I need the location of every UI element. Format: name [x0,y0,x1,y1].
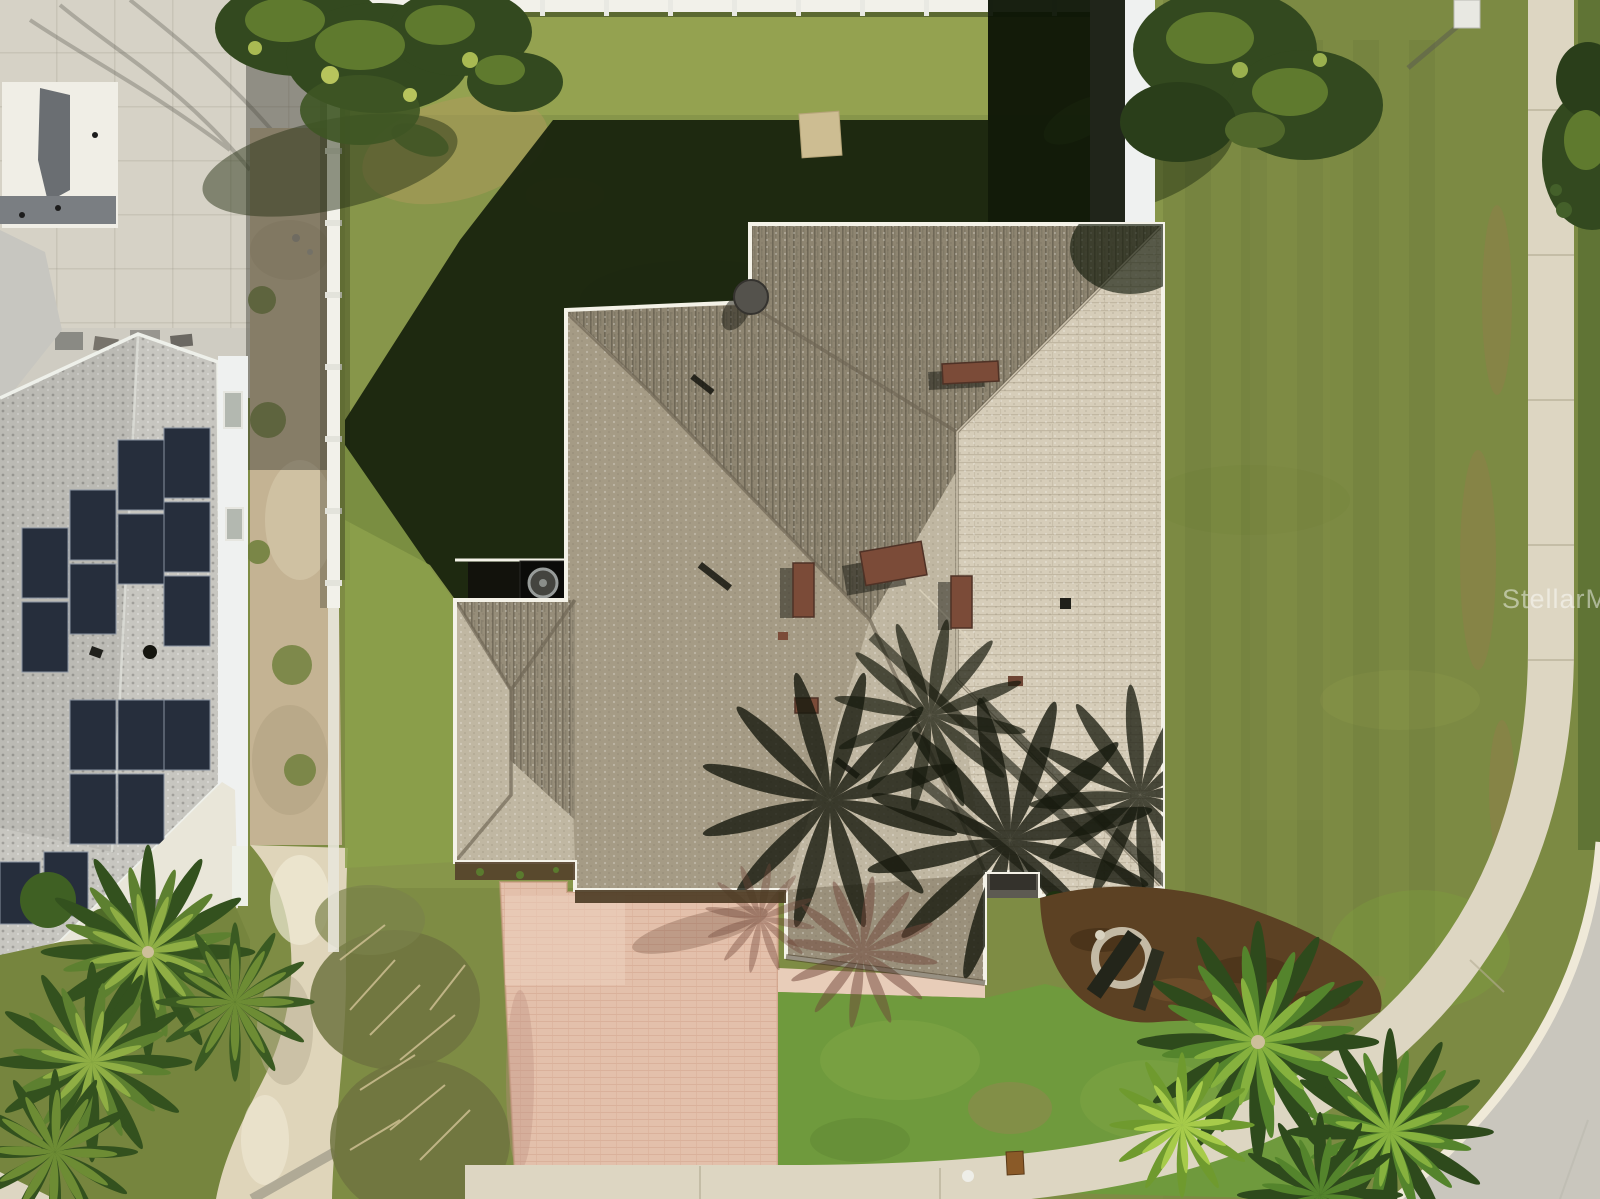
neighbor-pool-enclosure [0,82,118,228]
solar-panel [118,514,164,584]
entry-nook [985,870,1042,898]
roof-vent [942,361,999,384]
utility-box [1454,0,1480,28]
neighbor-window [224,392,242,428]
solar-panel [118,440,164,510]
sprinkler-head [962,1170,974,1182]
roof-vent [951,576,972,628]
neighbor-wall [218,356,248,856]
solar-panel [118,774,164,844]
solar-panel [70,700,116,770]
ac-unit [455,560,566,604]
aerial-photo: StellarMLS [0,0,1600,1199]
solar-panel [70,564,116,634]
dome-vent [734,280,768,314]
solar-panel [70,774,116,844]
neighbor-window [226,508,243,540]
solar-panel [164,428,210,498]
solar-panel [118,700,164,770]
solar-panel [164,700,210,770]
solar-panel [22,528,68,598]
solar-panel [164,576,210,646]
backyard-paver-pad [799,111,842,158]
roof-vent [793,563,814,617]
solar-panel [70,490,116,560]
solar-panel [22,602,68,672]
solar-panel [164,502,210,572]
roof-vent [778,632,788,640]
